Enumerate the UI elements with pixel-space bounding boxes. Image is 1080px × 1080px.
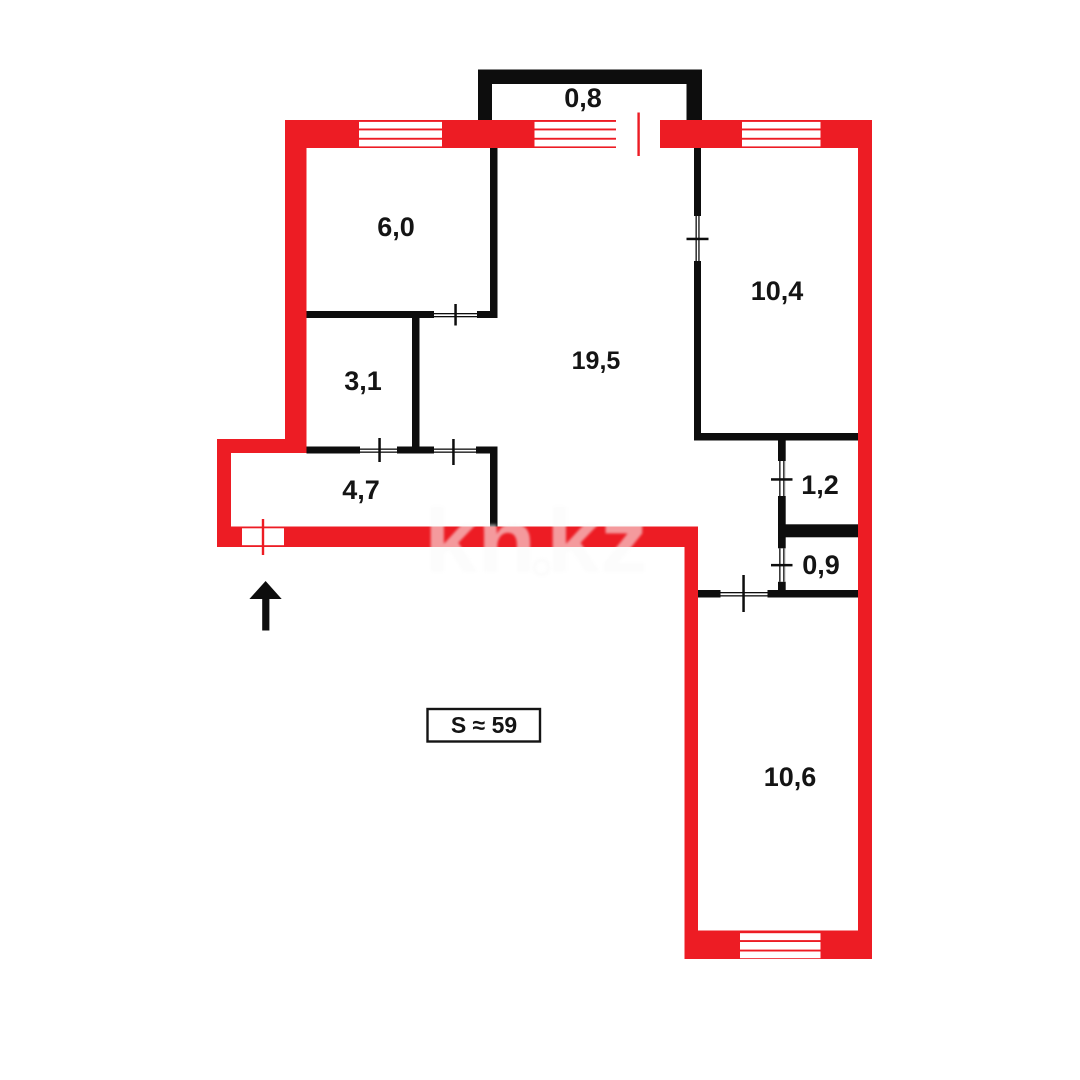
svg-text:10,4: 10,4 xyxy=(751,276,804,306)
svg-text:6,0: 6,0 xyxy=(377,212,415,242)
svg-text:3,1: 3,1 xyxy=(344,366,382,396)
svg-text:0,9: 0,9 xyxy=(802,550,840,580)
svg-text:1,2: 1,2 xyxy=(801,470,839,500)
svg-text:10,6: 10,6 xyxy=(764,762,817,792)
svg-text:kn: kn xyxy=(424,492,536,592)
svg-text:0,8: 0,8 xyxy=(564,83,602,113)
svg-text:19,5: 19,5 xyxy=(572,347,621,375)
svg-text:S ≈ 59: S ≈ 59 xyxy=(451,712,517,738)
svg-text:kz: kz xyxy=(546,492,648,592)
svg-text:4,7: 4,7 xyxy=(342,475,380,505)
